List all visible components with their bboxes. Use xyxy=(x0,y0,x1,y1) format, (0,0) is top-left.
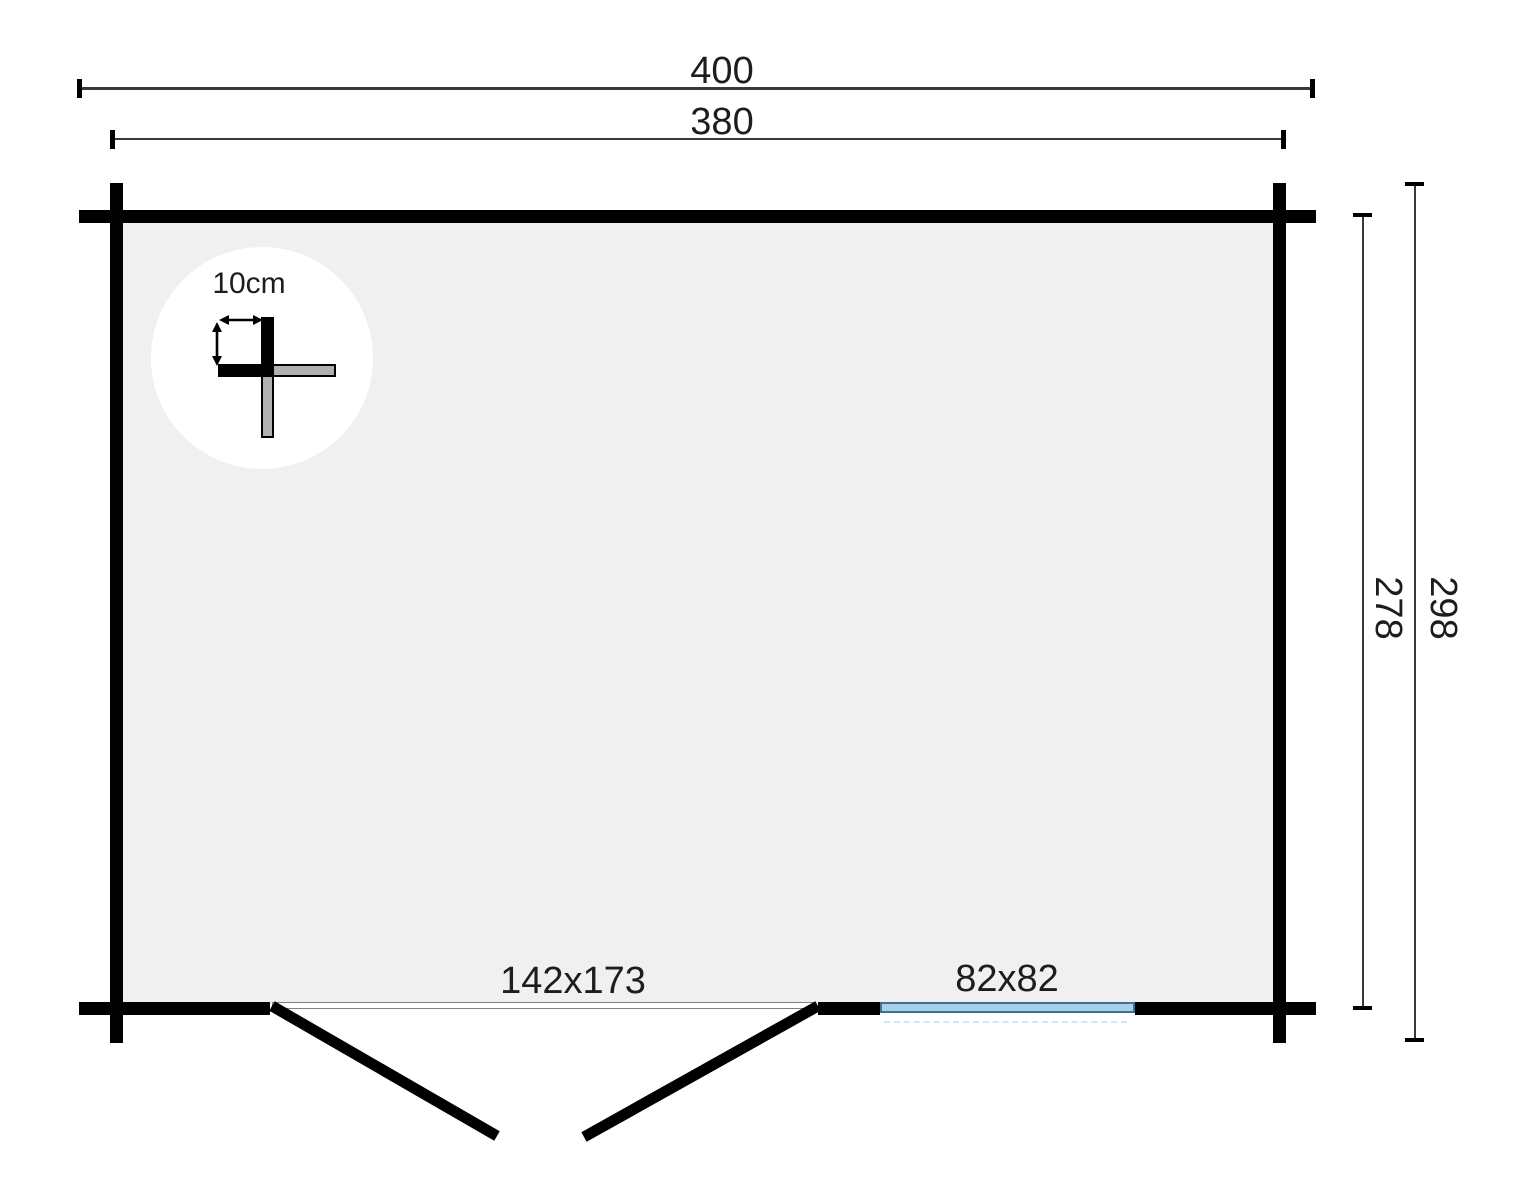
wall-left xyxy=(110,183,123,1043)
door-leaf-right xyxy=(584,1006,818,1137)
outer-width-tick-right xyxy=(1310,79,1315,98)
outer-width-dimension-line xyxy=(79,87,1313,90)
wall-top xyxy=(79,210,1316,223)
height-arrow-icon xyxy=(209,322,225,366)
outer-depth-tick-top xyxy=(1405,182,1424,186)
outer-width-label: 400 xyxy=(647,52,797,90)
wall-bottom-right-segment xyxy=(1135,1002,1316,1015)
window-glass xyxy=(880,1002,1135,1013)
door-size-label: 142x173 xyxy=(448,962,698,1000)
inner-width-dimension-line xyxy=(112,138,1284,140)
wall-right xyxy=(1273,183,1286,1043)
outer-width-tick-left xyxy=(77,79,82,98)
inner-width-tick-right xyxy=(1281,130,1286,149)
window-reflection-line xyxy=(884,1021,1127,1023)
inner-depth-label: 278 xyxy=(1369,533,1407,683)
floor-plan-canvas: 400 380 278 298 10cm 142x173 xyxy=(0,0,1530,1188)
inner-depth-tick-bottom xyxy=(1353,1006,1372,1010)
outer-depth-label: 298 xyxy=(1424,533,1462,683)
inner-width-label: 380 xyxy=(647,103,797,141)
outer-depth-dimension-line xyxy=(1414,184,1416,1040)
door-swing-leaves xyxy=(258,998,838,1148)
wall-bottom-left-segment xyxy=(79,1002,270,1015)
outer-depth-tick-bottom xyxy=(1405,1038,1424,1042)
inner-width-tick-left xyxy=(110,130,115,149)
inner-depth-dimension-line xyxy=(1362,215,1364,1009)
window-size-label: 82x82 xyxy=(882,960,1132,998)
log-cross-section-gray-right xyxy=(270,364,336,377)
log-cross-section-gray-down xyxy=(261,374,274,438)
inner-depth-tick-top xyxy=(1353,213,1372,217)
width-arrow-icon xyxy=(219,312,263,328)
wall-thickness-label: 10cm xyxy=(174,269,324,299)
door-leaf-left xyxy=(272,1006,497,1136)
